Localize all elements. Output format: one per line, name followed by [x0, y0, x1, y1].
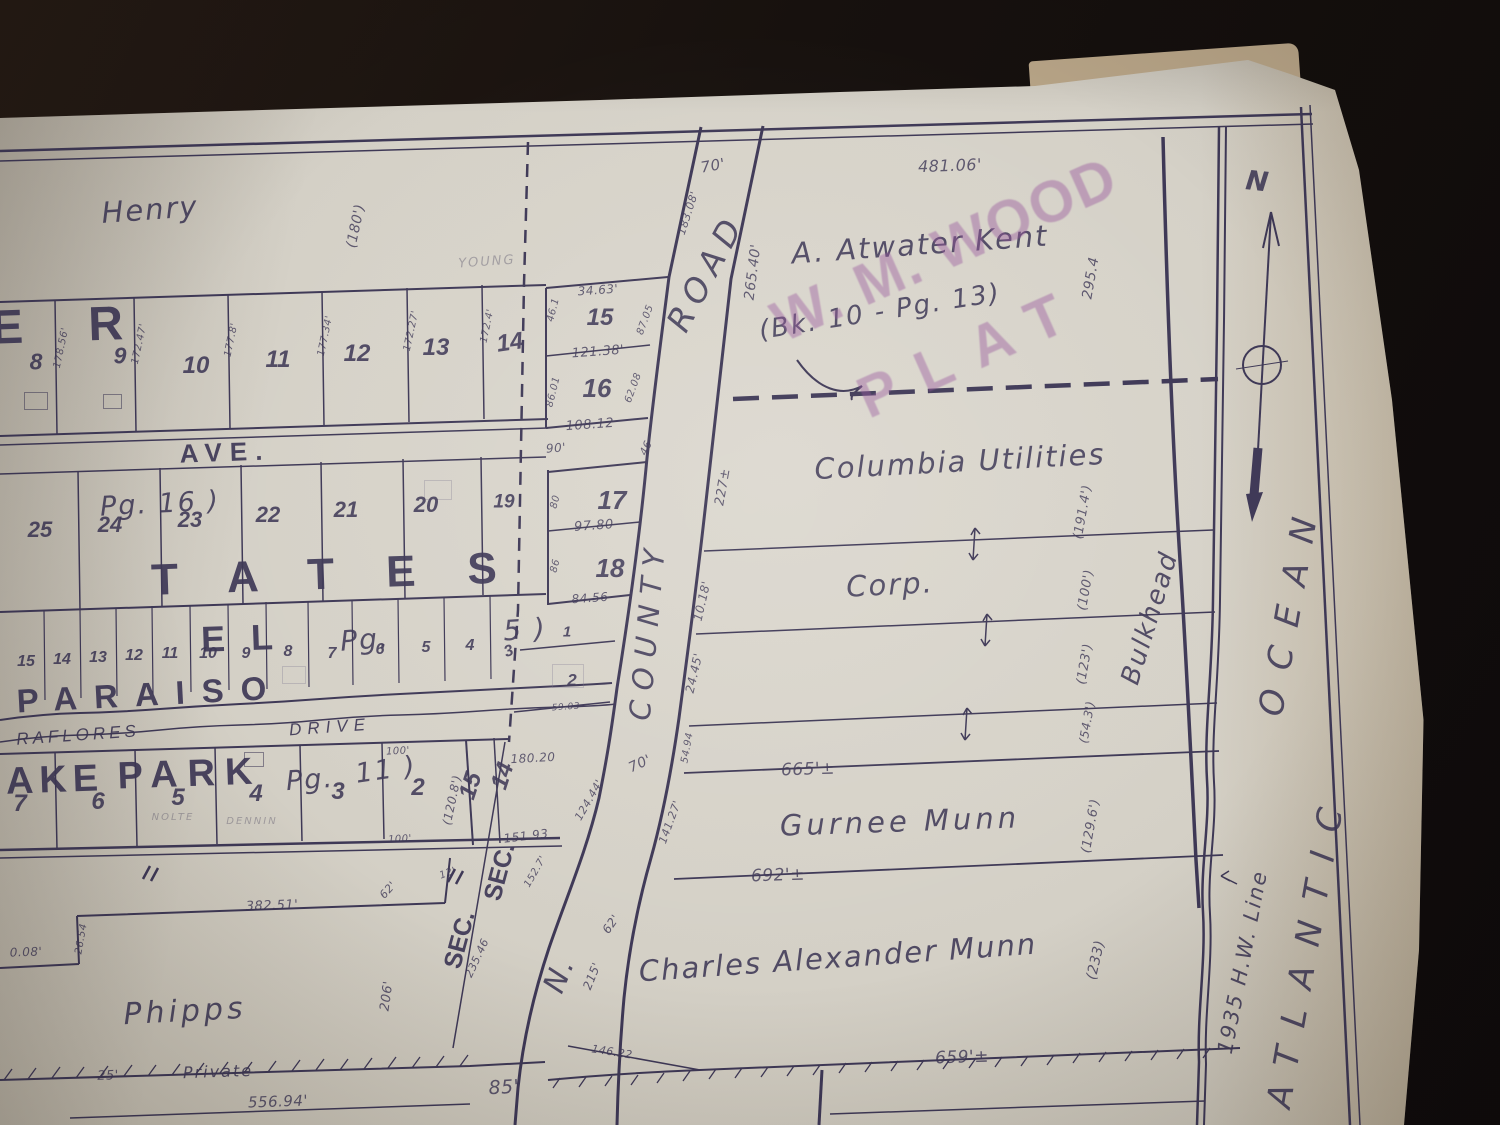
- owner-gurnee-munn: Gurnee Munn: [779, 803, 1020, 840]
- owner-columbia-corp: Corp.: [846, 568, 935, 602]
- plat-ref-pg5-b: 5 ): [502, 615, 547, 646]
- dimension-label: 382.51': [246, 899, 299, 914]
- plat-ref-pg11-a: Pg.: [285, 765, 335, 795]
- lot-number: 19: [493, 493, 514, 512]
- map-paper: Henry E R AVE. Pg. 16 ) TATES EL Pg. 5 )…: [0, 0, 1500, 1125]
- dimension-label: 97.80: [574, 518, 615, 534]
- lot-number: 1: [563, 625, 571, 640]
- dimension-label: 84.56: [571, 591, 609, 606]
- lot-number: 25: [28, 519, 52, 541]
- lot-number: 4: [466, 638, 475, 654]
- lot-number: 7: [13, 792, 26, 816]
- lot-number: 20: [414, 494, 438, 516]
- lot-number: 11: [266, 348, 291, 372]
- lot-number: 9: [114, 345, 127, 368]
- dimension-label: 692'±: [751, 867, 805, 886]
- private-road-label-1: Private: [183, 1063, 254, 1081]
- dimension-label: 121.38': [571, 344, 624, 361]
- lot-number: 15: [587, 306, 614, 330]
- dimension-label: 659'±: [935, 1049, 989, 1068]
- lot-number: 14: [53, 652, 71, 668]
- lot-number: 4: [249, 782, 262, 806]
- lot-number: 6: [376, 642, 385, 658]
- lot-number: 10: [199, 646, 217, 662]
- dimension-label: 85': [488, 1078, 520, 1099]
- street-ave: AVE.: [179, 437, 271, 466]
- pencil-annotation: DENNIN: [226, 817, 277, 827]
- dimension-label: 0.08': [10, 945, 43, 958]
- lot-number: 11: [162, 646, 179, 662]
- lot-number: 5: [171, 786, 184, 810]
- dimension-label: 108.12: [565, 417, 614, 433]
- lot-number: 23: [178, 509, 202, 531]
- lot-number: 5: [422, 640, 431, 656]
- lot-number: 12: [344, 342, 371, 366]
- lot-number: 2: [567, 672, 576, 689]
- lot-number: 8: [284, 644, 293, 660]
- lot-number: 13: [423, 336, 450, 360]
- dimension-label: 70': [700, 156, 727, 175]
- plat-ref-pg11-b: 11 ): [354, 752, 419, 787]
- lot-number: 16: [583, 375, 612, 401]
- lot-number: 2: [411, 776, 424, 800]
- subdivision-name-fragment: E R: [0, 299, 150, 352]
- lot-number: 22: [256, 504, 280, 526]
- north-arrow-icon: [1236, 212, 1288, 522]
- subdivision-park: PARK: [117, 752, 263, 795]
- lot-number: 13: [89, 650, 107, 666]
- lot-number: 15: [17, 654, 35, 670]
- dimension-label: 481.06': [918, 157, 982, 175]
- lot-number: 14: [495, 329, 525, 356]
- lot-number: 6: [91, 790, 104, 814]
- lot-number: 17: [598, 487, 627, 513]
- dimension-label: 180.20: [510, 751, 556, 765]
- private-road-label-2: Road: [0, 0, 24, 8]
- dimension-label: 665'±: [781, 761, 835, 780]
- pencil-annotation: NOLTE: [152, 813, 195, 823]
- lot-number: 7: [328, 646, 337, 662]
- lot-number: 24: [98, 514, 122, 536]
- dimension-label: 90': [546, 441, 567, 454]
- dimension-label: 100': [388, 834, 412, 845]
- lot-number: 12: [125, 648, 143, 664]
- dimension-label: 25': [97, 1069, 119, 1083]
- dimension-label: 34.63': [577, 283, 618, 298]
- building-footprint: [103, 394, 122, 409]
- plat-map-photo: Henry E R AVE. Pg. 16 ) TATES EL Pg. 5 )…: [0, 0, 1500, 1125]
- owner-phipps: Phipps: [123, 994, 248, 1030]
- lot-number: 3: [331, 780, 344, 804]
- lot-number: 18: [596, 555, 625, 581]
- dimension-label: 100': [386, 746, 410, 757]
- lot-number: 21: [334, 499, 358, 521]
- building-footprint: [282, 666, 306, 684]
- owner-henry: Henry: [101, 192, 200, 228]
- dimension-label: 206': [378, 980, 395, 1012]
- dimension-label: 556.94': [248, 1093, 309, 1110]
- pencil-annotation: YOUNG: [458, 254, 516, 271]
- compass-n-label: N: [1244, 167, 1271, 196]
- lot-number: 10: [183, 354, 210, 378]
- lot-number: 9: [242, 646, 251, 662]
- lot-number: 8: [30, 351, 43, 374]
- building-footprint: [24, 392, 48, 410]
